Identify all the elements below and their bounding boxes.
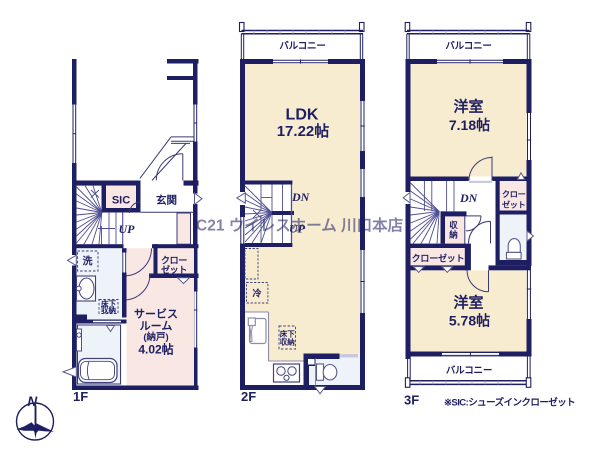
- svg-text:DN: DN: [459, 191, 479, 205]
- svg-text:冷: 冷: [252, 288, 261, 299]
- svg-text:納: 納: [449, 230, 458, 240]
- svg-text:4.02帖: 4.02帖: [138, 342, 173, 357]
- svg-text:(納戸): (納戸): [143, 331, 168, 343]
- svg-text:クローゼット: クローゼット: [412, 253, 465, 264]
- svg-text:クロー: クロー: [502, 189, 526, 199]
- svg-text:2F: 2F: [241, 389, 256, 404]
- svg-text:洋室: 洋室: [453, 294, 483, 312]
- svg-text:5.78帖: 5.78帖: [449, 313, 490, 329]
- svg-text:玄関: 玄関: [156, 194, 177, 207]
- svg-text:LDK: LDK: [286, 107, 319, 124]
- svg-text:SIC: SIC: [112, 195, 130, 207]
- svg-text:ルーム: ルーム: [140, 320, 173, 333]
- svg-text:3F: 3F: [404, 393, 419, 408]
- svg-text:1F: 1F: [73, 389, 88, 404]
- svg-text:洗: 洗: [83, 255, 93, 268]
- svg-text:収納: 収納: [280, 337, 295, 347]
- svg-text:17.22帖: 17.22帖: [277, 122, 330, 140]
- svg-text:バルコニー: バルコニー: [279, 40, 325, 52]
- svg-text:バルコニー: バルコニー: [446, 365, 492, 377]
- svg-text:収: 収: [449, 220, 458, 230]
- svg-text:UP: UP: [119, 222, 136, 236]
- svg-text:サービス: サービス: [134, 307, 178, 321]
- svg-text:ゼット: ゼット: [161, 264, 187, 275]
- svg-text:洋室: 洋室: [453, 98, 483, 116]
- svg-text:N: N: [28, 394, 38, 409]
- svg-text:7.18帖: 7.18帖: [449, 117, 490, 133]
- svg-text:C21 ウイレスホーム 川口本店: C21 ウイレスホーム 川口本店: [196, 216, 403, 235]
- svg-text:※SIC:シューズインクローゼット: ※SIC:シューズインクローゼット: [444, 397, 575, 409]
- svg-text:DN: DN: [291, 190, 311, 204]
- svg-text:収納: 収納: [101, 305, 116, 315]
- svg-text:バルコニー: バルコニー: [445, 40, 491, 52]
- svg-text:ゼット: ゼット: [502, 199, 526, 209]
